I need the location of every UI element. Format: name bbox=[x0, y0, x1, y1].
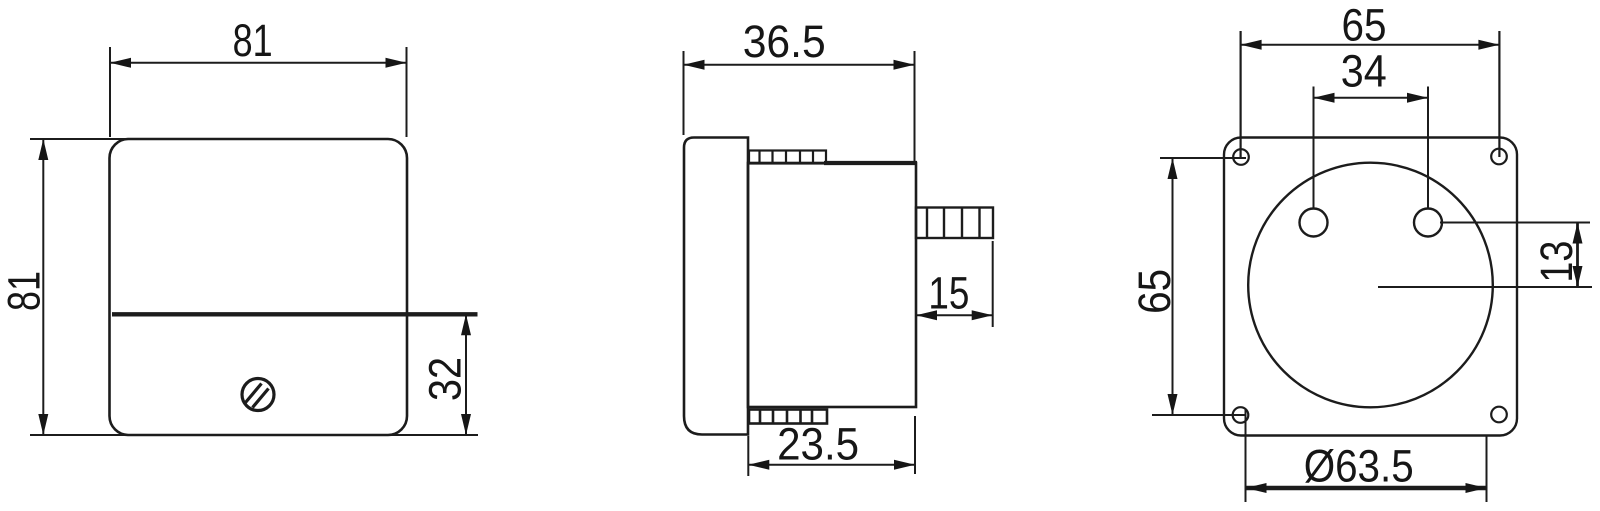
svg-text:13: 13 bbox=[1531, 241, 1582, 283]
svg-text:Ø63.5: Ø63.5 bbox=[1304, 441, 1414, 492]
svg-text:36.5: 36.5 bbox=[743, 16, 826, 67]
svg-text:81: 81 bbox=[0, 271, 50, 311]
svg-text:34: 34 bbox=[1341, 46, 1387, 97]
svg-text:65: 65 bbox=[1342, 0, 1387, 51]
svg-text:81: 81 bbox=[233, 15, 273, 66]
svg-text:15: 15 bbox=[928, 268, 969, 319]
svg-text:23.5: 23.5 bbox=[777, 419, 859, 470]
svg-text:65: 65 bbox=[1129, 269, 1180, 314]
svg-text:32: 32 bbox=[419, 357, 470, 401]
